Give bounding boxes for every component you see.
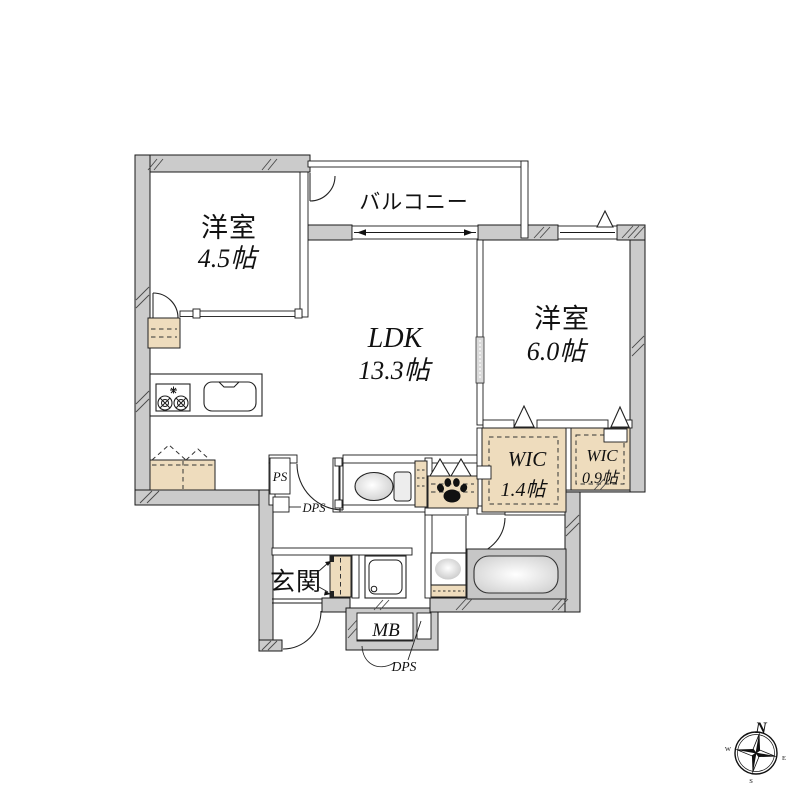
sink-icon — [204, 382, 256, 411]
compass-east: E — [782, 755, 786, 762]
floor-plan: 洋室 4.5帖 バルコニー LDK 13.3帖 洋室 6.0帖 WIC 1.4帖… — [0, 0, 800, 800]
wic1-name: WIC — [508, 447, 547, 471]
floor-plan-page: 洋室 4.5帖 バルコニー LDK 13.3帖 洋室 6.0帖 WIC 1.4帖… — [0, 0, 800, 800]
ldk-name: LDK — [367, 323, 424, 354]
bedroom1-name: 洋室 — [201, 213, 257, 243]
sliding-door — [476, 337, 484, 383]
vanity-icon — [431, 553, 466, 585]
mb-label: MB — [371, 620, 400, 641]
washer-pan-icon — [365, 556, 406, 598]
dps-box — [273, 497, 289, 512]
wic2-size: 0.9帖 — [582, 469, 620, 487]
wic1-door-marker — [514, 406, 534, 427]
vent-triangle — [597, 211, 613, 227]
compass-north: N — [754, 720, 768, 737]
bedroom2-name: 洋室 — [534, 304, 590, 334]
entrance-threshold — [272, 599, 322, 603]
dps-bottom-label: DPS — [391, 659, 417, 674]
closet-door — [153, 293, 178, 318]
bathtub-icon — [474, 556, 558, 593]
bedroom2-window — [558, 226, 617, 239]
bedroom1-closet — [148, 318, 180, 348]
stove-icon — [156, 384, 190, 411]
compass-icon: N W E S — [725, 720, 786, 785]
sliding-partition — [180, 309, 302, 318]
entrance-door — [283, 611, 321, 649]
dps-hall-label: DPS — [302, 501, 327, 515]
bedroom2-size: 6.0帖 — [527, 337, 590, 366]
toilet-shelf — [415, 461, 427, 507]
wic2-name: WIC — [586, 446, 618, 465]
bedroom1-size: 4.5帖 — [198, 244, 261, 273]
balcony-label: バルコニー — [359, 190, 469, 214]
compass-south: S — [749, 778, 753, 785]
wic2-door-marker — [611, 407, 629, 427]
compass-west: W — [725, 746, 732, 753]
wic1-size: 1.4帖 — [501, 479, 549, 501]
balcony-door — [310, 173, 335, 201]
ldk-size: 13.3帖 — [358, 356, 434, 385]
balcony-window — [352, 226, 478, 239]
entrance-label: 玄関 — [270, 568, 322, 596]
pipe-spaces — [270, 458, 301, 512]
toilet-icon — [355, 472, 411, 501]
kitchen-counter — [150, 374, 262, 416]
ps-label: PS — [272, 469, 288, 484]
